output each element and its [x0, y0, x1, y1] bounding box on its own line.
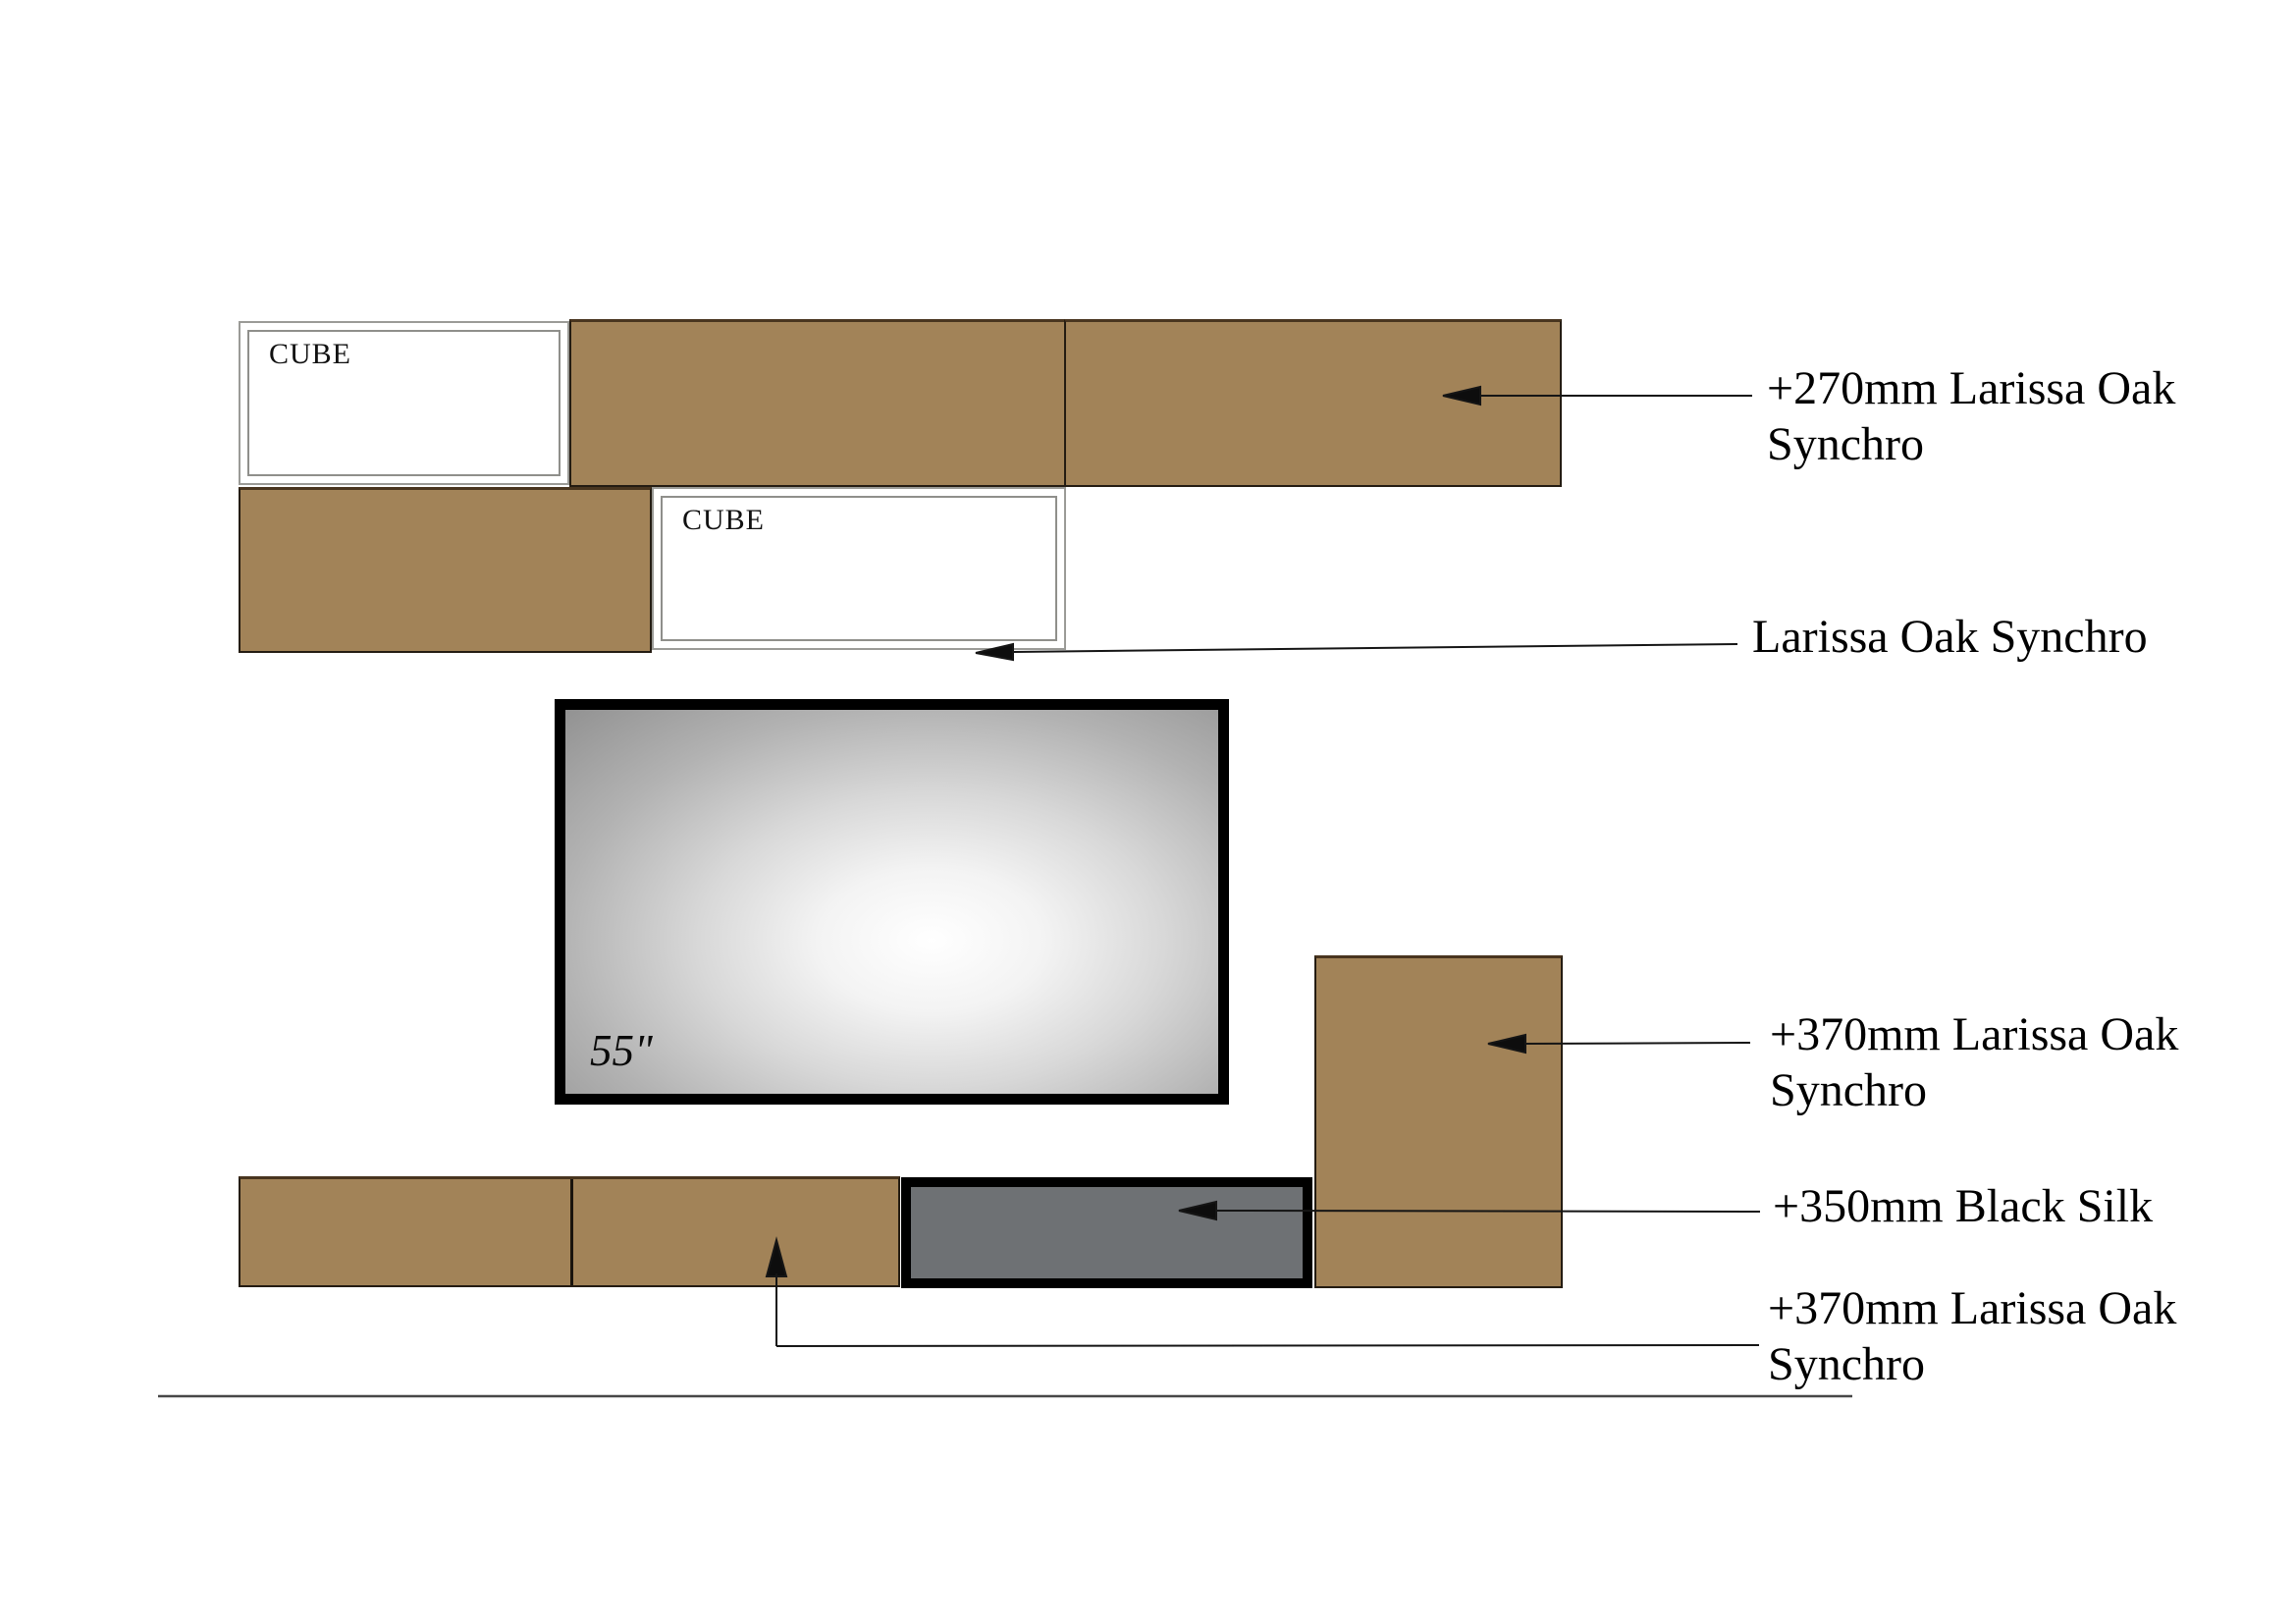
panel-black-silk-face: [911, 1187, 1303, 1278]
panel-row2-oak: [239, 487, 652, 653]
annotation-350mm-silk-line1: +350mm Black Silk: [1773, 1178, 2153, 1234]
annotation-350mm-silk: +350mm Black Silk: [1773, 1178, 2153, 1234]
cube-label-top: CUBE: [249, 332, 559, 371]
panel-bottom-oak-370: [239, 1176, 900, 1287]
annotation-370mm-right-line2: Synchro: [1770, 1062, 2178, 1118]
annotation-370mm-right: +370mm Larissa Oak Synchro: [1770, 1006, 2178, 1118]
tv-screen: [565, 710, 1218, 1094]
cube-label-row2: CUBE: [663, 498, 1055, 537]
annotation-370mm-right-line1: +370mm Larissa Oak: [1770, 1006, 2178, 1062]
panel-top-right-oak-270: [1064, 319, 1562, 487]
tv-size-label: 55": [590, 1029, 653, 1073]
leader-line-oak-synchro: [1013, 644, 1737, 652]
annotation-270mm-line1: +270mm Larissa Oak: [1767, 360, 2175, 416]
panel-top-left-oak: [569, 319, 1066, 487]
leader-line-370-bottom: [776, 1345, 1759, 1346]
annotation-370mm-bottom-line2: Synchro: [1768, 1336, 2176, 1392]
cube-box-top: CUBE: [239, 321, 569, 485]
bottom-shelf-divider: [570, 1179, 573, 1285]
annotation-oak-synchro-line1: Larissa Oak Synchro: [1752, 609, 2148, 665]
annotation-270mm-line2: Synchro: [1767, 416, 2175, 472]
wall-unit-elevation-canvas: CUBE CUBE 55": [0, 0, 2296, 1623]
cube-box-row2-inner: CUBE: [661, 496, 1057, 641]
panel-black-silk-350: [901, 1177, 1312, 1288]
cube-box-top-inner: CUBE: [247, 330, 561, 476]
cube-box-row2: CUBE: [652, 487, 1066, 650]
panel-right-vertical-oak-370: [1314, 955, 1563, 1288]
annotation-270mm: +270mm Larissa Oak Synchro: [1767, 360, 2175, 472]
annotation-oak-synchro: Larissa Oak Synchro: [1752, 609, 2148, 665]
tv-55-inch: [555, 699, 1229, 1105]
annotation-370mm-bottom: +370mm Larissa Oak Synchro: [1768, 1280, 2176, 1392]
annotation-370mm-bottom-line1: +370mm Larissa Oak: [1768, 1280, 2176, 1336]
